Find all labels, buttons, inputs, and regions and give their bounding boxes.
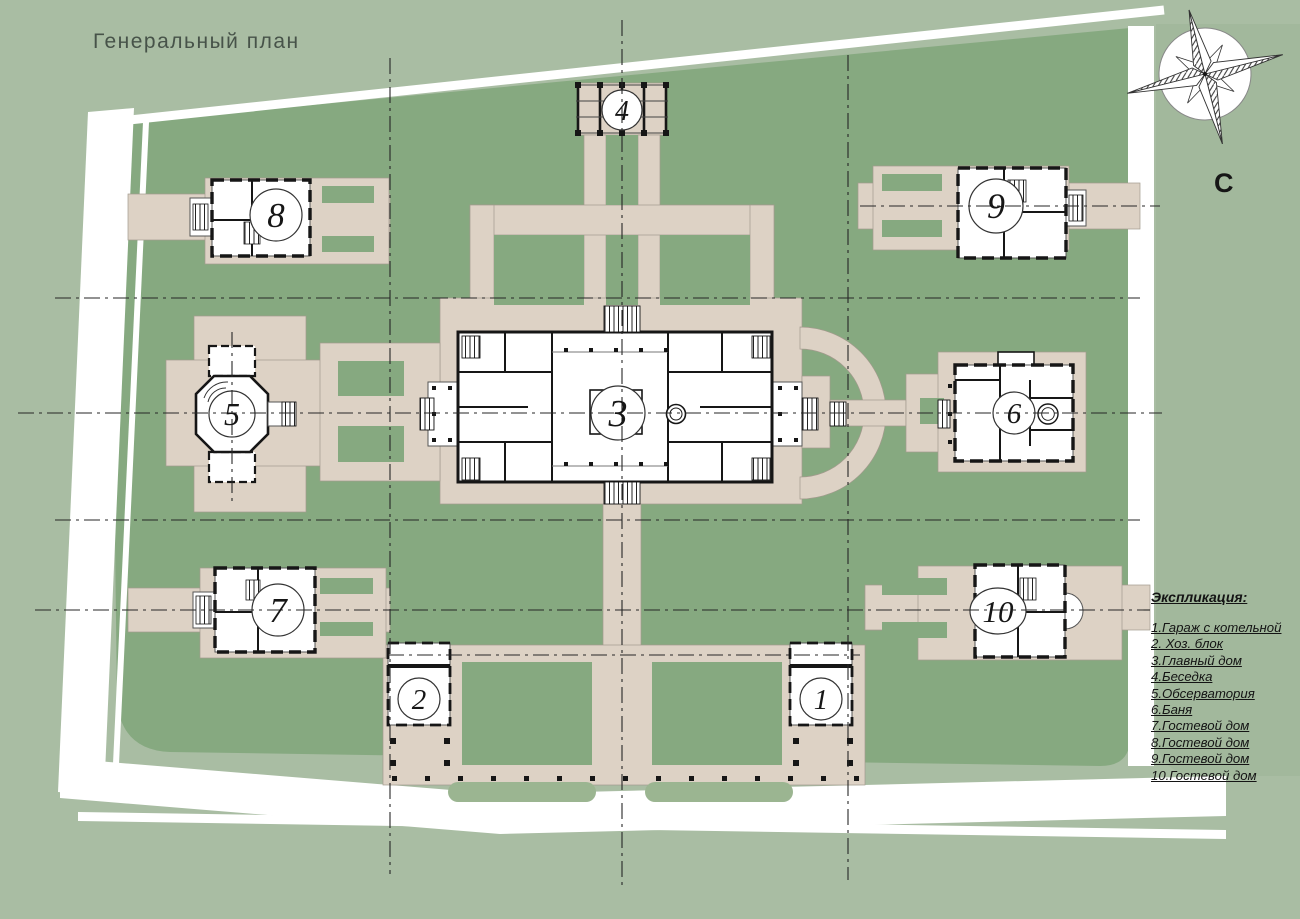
compass-north-label: С	[1214, 168, 1234, 199]
building-5-number: 5	[224, 396, 240, 432]
building-2-number: 2	[412, 684, 427, 716]
legend-item-7: 7.Гостевой дом	[1151, 718, 1281, 734]
legend-item-9: 9.Гостевой дом	[1151, 751, 1281, 767]
general-plan-drawing: 1 2 3 4 5 6 7 8 9 10	[0, 0, 1300, 919]
site-plan-canvas: 1 2 3 4 5 6 7 8 9 10	[0, 0, 1300, 919]
legend-heading: Экспликация:	[1151, 589, 1281, 605]
legend-item-8: 8.Гостевой дом	[1151, 735, 1281, 751]
legend-item-5: 5.Обсерватория	[1151, 686, 1281, 702]
building-1-number: 1	[814, 684, 829, 716]
building-6-number: 6	[1007, 398, 1022, 430]
legend-item-1: 1.Гараж с котельной	[1151, 620, 1281, 636]
legend-item-4: 4.Беседка	[1151, 669, 1281, 685]
legend-item-2: 2. Хоз. блок	[1151, 636, 1281, 652]
legend-item-10: 10.Гостевой дом	[1151, 768, 1281, 784]
legend-item-6: 6.Баня	[1151, 702, 1281, 718]
legend-list: 1.Гараж с котельной 2. Хоз. блок 3.Главн…	[1151, 620, 1281, 784]
building-3-number: 3	[608, 393, 628, 435]
building-9-number: 9	[987, 186, 1005, 226]
building-8-number: 8	[267, 196, 285, 235]
legend-item-3: 3.Главный дом	[1151, 653, 1281, 669]
building-4-number: 4	[615, 96, 629, 127]
building-7-number: 7	[269, 591, 288, 630]
page-title: Генеральный план	[93, 30, 300, 54]
legend: Экспликация: 1.Гараж с котельной 2. Хоз.…	[1151, 589, 1281, 784]
building-10-number: 10	[983, 594, 1015, 629]
